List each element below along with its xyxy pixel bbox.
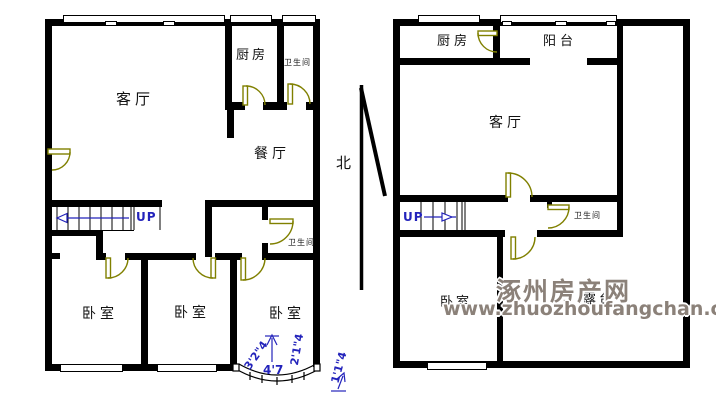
stairs-arrow-floor2	[424, 213, 456, 221]
room-label-living-f1: 客厅	[116, 92, 154, 107]
door-arcs-floor2	[478, 31, 569, 259]
room-label-kitchen-f2: 厨房	[437, 35, 471, 48]
room-label-bedroom-mid-f1: 卧室	[174, 306, 210, 320]
room-label-bedroom-left-f1: 卧室	[82, 307, 118, 321]
stairs-up-label-f1: UP	[136, 211, 157, 223]
room-label-bath-top-f1: 卫生间	[284, 59, 311, 67]
room-label-bath-mid-f1: 卫生间	[288, 239, 315, 247]
door-arcs-floor1	[48, 84, 310, 280]
dimension-label: 4'7	[263, 364, 283, 376]
stairs-up-label-f2: UP	[403, 211, 424, 223]
room-label-balcony-f2: 阳台	[543, 35, 577, 48]
room-label-bedroom-right-f1: 卧室	[269, 307, 305, 321]
room-label-living-f2: 客厅	[489, 116, 525, 130]
north-label: 北	[336, 156, 351, 171]
north-arrow-icon	[361, 85, 385, 290]
room-label-kitchen-f1: 厨房	[236, 49, 268, 62]
floorplan-canvas: 客厅 厨房 卫生间 餐厅 卫生间 UP 卧室 卧室 卧室 北 厨房 阳台 客厅 …	[0, 0, 716, 414]
plan-linework	[0, 0, 716, 414]
watermark-url: www.zhuozhoufangchan.com	[443, 298, 716, 320]
room-label-dining-f1: 餐厅	[254, 147, 290, 161]
room-label-bath-f2: 卫生间	[574, 212, 601, 220]
